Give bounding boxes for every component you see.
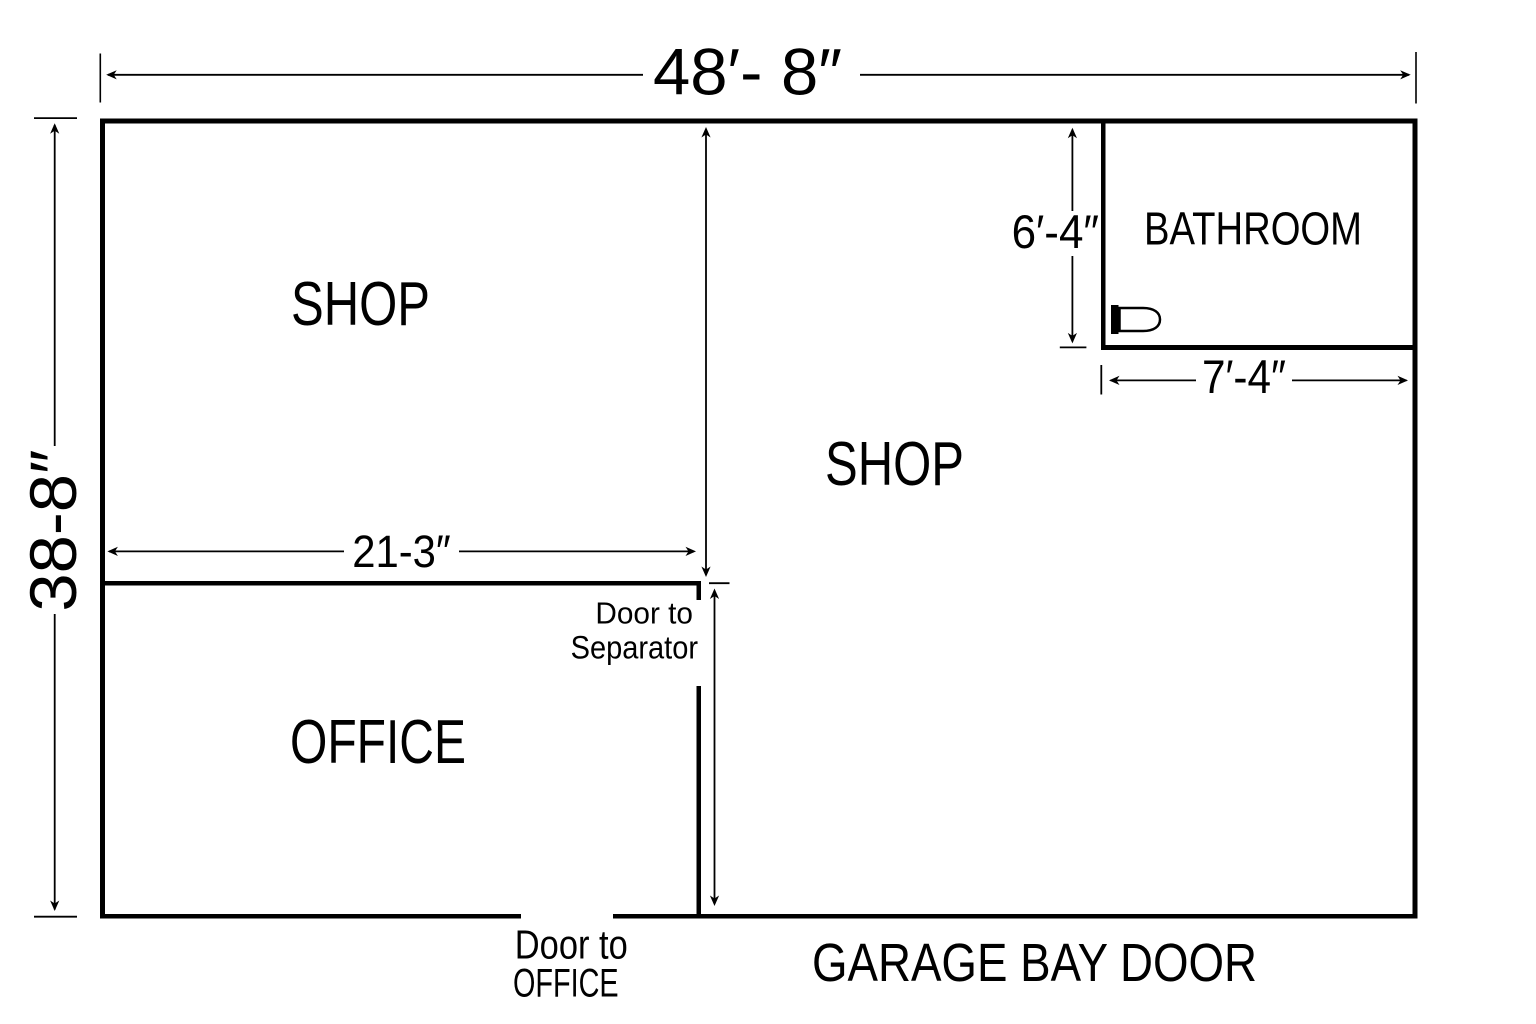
svg-text:Door to: Door to <box>595 596 693 631</box>
svg-text:6′-4″: 6′-4″ <box>1012 205 1099 258</box>
svg-text:GARAGE BAY DOOR: GARAGE BAY DOOR <box>812 933 1257 993</box>
svg-text:21-3″: 21-3″ <box>352 526 451 577</box>
svg-text:OFFICE: OFFICE <box>513 962 619 1006</box>
svg-text:Door to: Door to <box>515 921 628 967</box>
svg-text:Separator: Separator <box>571 630 699 666</box>
svg-text:SHOP: SHOP <box>291 269 430 339</box>
svg-text:38-8″: 38-8″ <box>16 450 90 612</box>
svg-text:SHOP: SHOP <box>825 429 964 499</box>
svg-text:OFFICE: OFFICE <box>290 707 466 777</box>
svg-text:BATHROOM: BATHROOM <box>1144 203 1362 255</box>
svg-text:7′-4″: 7′-4″ <box>1202 350 1286 403</box>
svg-text:48′- 8″: 48′- 8″ <box>653 35 842 109</box>
